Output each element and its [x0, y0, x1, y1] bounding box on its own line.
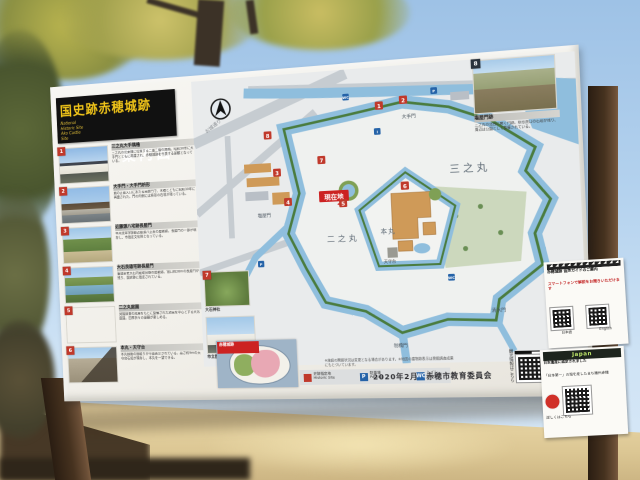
map-photo-card: 7 大石神社 [203, 269, 254, 321]
svg-text:6: 6 [403, 184, 408, 191]
guide-entry: 3 近藤源八宅跡長屋門 甲州流軍学師範近藤源八正憲の屋敷跡。長屋門の一部が現存し… [62, 220, 200, 266]
qr-label: English [599, 326, 612, 331]
entry-photo-ote-gate: 2 [60, 185, 111, 224]
svg-text:4: 4 [286, 200, 290, 206]
ground-shadow [0, 458, 250, 480]
entry-body: 城の正面入口にあたる高麗門で、木橋とともに昭和30年に再建された。門の内側には枡… [114, 187, 198, 223]
entry-number-badge: 5 [64, 306, 72, 315]
label-sannomaru: 三之丸 [449, 161, 490, 176]
inset-locator-map: 赤穂城跡 [216, 339, 298, 388]
label-tenshudai: 天守台 [384, 258, 397, 264]
qr-code-japanese [550, 307, 573, 330]
guide-entry: 6 本丸・天守台 本丸御殿の間取りが平面表示されている。高さ約9mの天守台石垣が… [67, 343, 205, 386]
entry-body: 三之丸の北東隅に位置する二重二階の隅櫓。昭和30年に大手門とともに再建され、赤穂… [112, 146, 196, 183]
svg-text:5: 5 [341, 201, 345, 207]
guide-entry-aerial: 8 塩屋門跡 三之丸の北西に開く門跡。枡形虎口の石垣が残り、周辺は公園として整備… [472, 53, 562, 157]
notice-warning-text: スマートフォンで解説をお聞きいただけます [548, 278, 622, 292]
svg-text:2: 2 [401, 98, 406, 105]
qr-code-english [586, 305, 609, 328]
sign-title-block: 国史跡赤穂城跡 National Historic SiteAko Castle… [56, 89, 177, 144]
inset-label: 赤穂城跡 [217, 341, 259, 354]
entry-number-badge: 7 [202, 271, 211, 280]
entry-photo-ninomaru-garden: 5 [65, 306, 116, 344]
entry-body: 本丸御殿の間取りが平面表示されている。高さ約9mの天守台石垣が現存し、本丸を一望… [121, 351, 205, 384]
svg-text:8: 8 [266, 134, 270, 140]
entry-number-badge: 4 [63, 267, 71, 276]
guide-entry: 5 二之丸庭園 発掘調査の成果をもとに整備された池泉を中心とする大名庭園。四季折… [65, 302, 203, 346]
entry-number-badge: 3 [61, 227, 69, 236]
qr-code [563, 386, 592, 415]
jh-line2: 「日本第一」の塩を産したまち播州赤穂 [544, 369, 622, 378]
svg-text:WC: WC [342, 95, 349, 100]
entry-body: 発掘調査の成果をもとに整備された池泉を中心とする大名庭園。四季折々の景観が楽しめ… [119, 310, 203, 344]
tree-trunk [194, 0, 225, 67]
entry-photo-aerial-ruins: 8 [472, 54, 558, 114]
card-photo-oishi-shrine: 7 [203, 270, 250, 307]
svg-text:i: i [377, 130, 378, 134]
north-arrow-icon [211, 98, 231, 119]
entry-number-badge: 1 [57, 147, 65, 156]
qr-caption: 観光情報はこちら [507, 349, 515, 389]
attached-notice: 赤穂城跡 音声ガイドのご案内 スマートフォンで解説をお聞きいただけます 日本語 … [543, 258, 628, 349]
guide-entry: 2 大手門・大手門枡形 城の正面入口にあたる高麗門で、木橋とともに昭和30年に再… [60, 179, 198, 227]
svg-text:1: 1 [377, 104, 381, 111]
svg-text:WC: WC [448, 276, 456, 281]
sign-title-en: National Historic SiteAko Castle Site [60, 120, 86, 142]
entry-number-badge: 2 [59, 187, 67, 196]
entry-photo-stone-wall: 6 [67, 346, 118, 383]
svg-text:7: 7 [319, 158, 323, 164]
photo-of-castle-map-signboard: { "board": { "title": { "main": "国史跡赤穂城跡… [0, 0, 640, 480]
entry-body: 甲州流軍学師範近藤源八正憲の屋敷跡。長屋門の一部が現存し、市指定文化財となってい… [115, 228, 199, 264]
rising-sun-logo [545, 394, 560, 409]
entry-body: 三之丸の北西に開く門跡。枡形虎口の石垣が残り、周辺は公園として整備されている。 [475, 118, 562, 159]
legend-site-icon [304, 373, 312, 381]
card-caption: 大石神社 [205, 305, 254, 312]
entry-number-badge: 6 [66, 346, 74, 355]
entry-body: 筆頭家老大石内蔵助良雄の屋敷跡。間口約28mの長屋門が残り、国史跡に指定されてい… [117, 269, 201, 304]
qr-label: 日本語 [561, 329, 572, 335]
entry-photo-kondo-gate: 3 [62, 226, 113, 264]
japan-heritage-notice: Japan Heritage 日本遺産に認定されました 「日本第一」の塩を産した… [540, 346, 628, 438]
signboard: 国史跡赤穂城跡 National Historic SiteAko Castle… [50, 45, 594, 402]
svg-text:3: 3 [275, 171, 279, 177]
entry-photo-corner-turret: 1 [58, 145, 109, 184]
entry-number-badge: 8 [471, 59, 481, 69]
entry-photo-oishi-residence: 4 [64, 266, 115, 304]
label-ninomaru: 二之丸 [327, 232, 360, 244]
guide-entry: 4 大石良雄宅跡長屋門 筆頭家老大石内蔵助良雄の屋敷跡。間口約28mの長屋門が残… [63, 261, 201, 306]
